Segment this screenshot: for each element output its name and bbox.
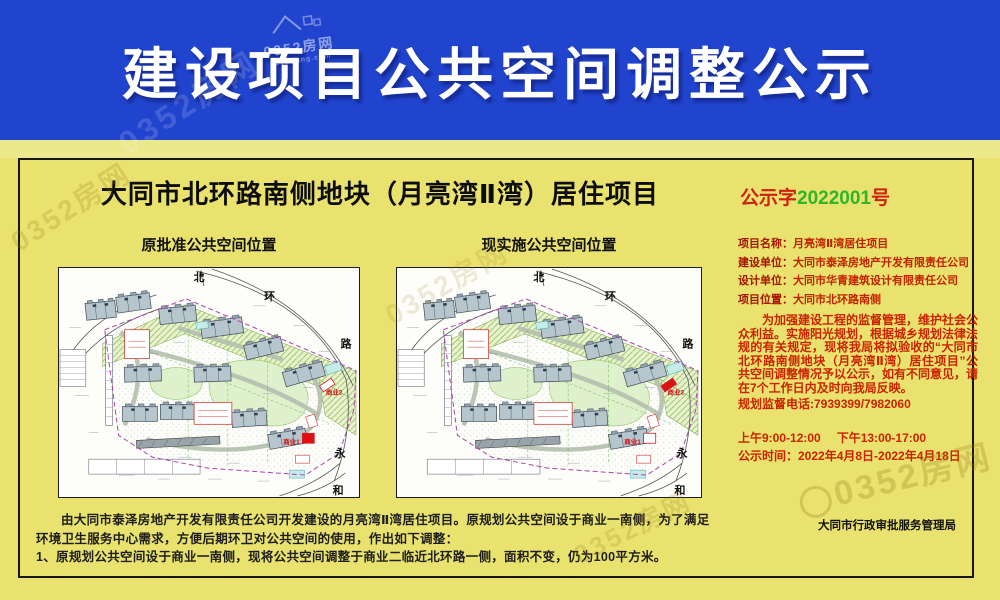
info-label: 项目名称： xyxy=(738,238,793,250)
street-label-road: 路 xyxy=(682,337,694,351)
info-value: 大同市华青建筑设计有限责任公司 xyxy=(793,275,958,287)
biz1-label: 商业1 xyxy=(624,437,641,446)
hours-am: 上午9:00-12:00 xyxy=(738,431,821,445)
street-label-ring: 环 xyxy=(605,290,616,303)
info-row-location: 项目位置：大同市北环路南侧 xyxy=(738,291,978,310)
doc-number-suffix: 号 xyxy=(871,188,890,209)
office-hours: 上午9:00-12:00下午13:00-17:00 xyxy=(738,429,926,446)
doc-number-value: 2022001 xyxy=(797,188,871,209)
hours-pm: 下午13:00-17:00 xyxy=(837,431,926,445)
street-label-he: 和 xyxy=(674,483,685,497)
building-block xyxy=(85,298,117,320)
building-block xyxy=(571,408,607,428)
info-value: 月亮湾Ⅱ湾居住项目 xyxy=(793,238,888,250)
building-block xyxy=(500,402,534,419)
project-info: 项目名称：月亮湾Ⅱ湾居住项目 建设单位：大同市泰泽房地产开发有限责任公司 设计单… xyxy=(738,235,978,411)
building-block xyxy=(158,302,196,324)
building-block xyxy=(231,408,267,428)
building-block xyxy=(534,363,572,382)
explanation-para2: 1、原规划公共空间设于商业一南侧，现将公共空间调整于商业二临近北环路一侧，面积不… xyxy=(36,548,714,567)
building-block xyxy=(123,404,158,421)
biz2-label: 商业2 xyxy=(667,387,684,396)
info-value: 大同市北环路南侧 xyxy=(793,294,881,306)
building-block xyxy=(463,363,501,382)
street-label-north: 北 xyxy=(533,270,544,284)
notice-period: 公示时间：2022年4月8日-2022年4月18日 xyxy=(738,447,961,464)
biz1-label: 商业1 xyxy=(283,437,300,446)
phone-line: 规划监督电话:7939399/7982060 xyxy=(738,397,978,411)
info-value: 大同市泰泽房地产开发有限责任公司 xyxy=(793,257,969,269)
info-label: 项目位置： xyxy=(738,294,793,306)
street-label-north: 北 xyxy=(194,270,205,284)
biz2-label: 商业2 xyxy=(326,387,343,396)
doc-number-prefix: 公示字 xyxy=(740,188,797,209)
building-block xyxy=(124,363,161,382)
project-title: 大同市北环路南侧地块（月亮湾Ⅱ湾）居住项目 xyxy=(58,174,702,211)
street-label-he: 和 xyxy=(333,483,344,497)
building-block xyxy=(160,402,194,419)
info-row-name: 项目名称：月亮湾Ⅱ湾居住项目 xyxy=(738,235,978,254)
adjustment-explanation: 由大同市泰泽房地产开发有限责任公司开发建设的月亮湾Ⅱ湾居住项目。原规划公共空间设… xyxy=(36,511,714,567)
info-row-builder: 建设单位：大同市泰泽房地产开发有限责任公司 xyxy=(738,254,978,273)
public-space-marker-biz1 xyxy=(644,433,656,443)
building-block xyxy=(423,298,455,320)
building-block xyxy=(461,404,496,421)
building-block xyxy=(498,302,537,324)
issuing-agency: 大同市行政审批服务管理局 xyxy=(818,517,956,533)
site-map-current: 商业1商业2北环路永和 xyxy=(396,267,702,498)
public-space-marker-biz1 xyxy=(302,433,314,443)
doc-number: 公示字2022001号 xyxy=(740,183,890,210)
info-label: 建设单位： xyxy=(738,257,793,269)
notice-poster: 建设项目公共空间调整公示 大同市北环路南侧地块（月亮湾Ⅱ湾）居住项目 公示字20… xyxy=(0,0,1000,600)
map-label-original: 原批准公共空间位置 xyxy=(58,234,360,255)
site-map-current-svg: 商业1商业2北环路永和 xyxy=(397,268,701,497)
building-block xyxy=(194,363,231,382)
banner-divider xyxy=(0,140,1000,158)
banner: 建设项目公共空间调整公示 xyxy=(0,0,1000,140)
explanation-para1: 由大同市泰泽房地产开发有限责任公司开发建设的月亮湾Ⅱ湾居住项目。原规划公共空间设… xyxy=(36,511,714,548)
street-label-yong: 永 xyxy=(675,446,688,460)
street-label-yong: 永 xyxy=(334,446,346,460)
map-label-current: 现实施公共空间位置 xyxy=(396,234,702,255)
banner-title: 建设项目公共空间调整公示 xyxy=(122,30,878,111)
street-label-road: 路 xyxy=(341,337,353,351)
street-label-ring: 环 xyxy=(264,290,275,303)
site-map-original: 商业1商业2北环路永和 xyxy=(58,267,360,498)
info-label: 设计单位： xyxy=(738,275,793,287)
info-row-designer: 设计单位：大同市华青建筑设计有限责任公司 xyxy=(738,272,978,291)
site-map-original-svg: 商业1商业2北环路永和 xyxy=(59,268,359,497)
notice-body: 为加强建设工程的监督管理，维护社会公众利益。实施阳光规划，根据城乡规划法律法规的… xyxy=(738,314,978,395)
